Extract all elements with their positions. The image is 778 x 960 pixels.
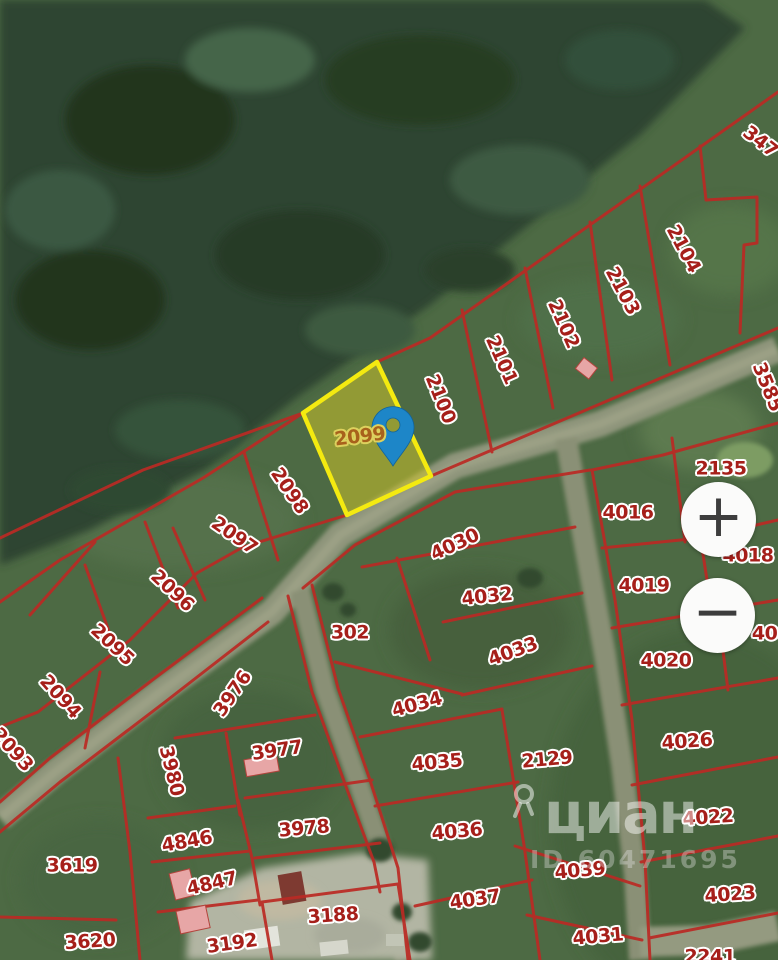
plus-icon: +: [693, 486, 743, 546]
parcel-label: 4035: [411, 751, 463, 774]
parcel-label: 4026: [661, 731, 713, 754]
parcel-label: 4031: [572, 925, 624, 948]
parcel-label: 4019: [619, 577, 670, 596]
zoom-in-button[interactable]: +: [681, 482, 756, 557]
satellite-map[interactable]: 3472104210321022101210020992098209720962…: [0, 0, 778, 960]
parcel-label: 3978: [278, 817, 330, 840]
parcel-label: 4036: [431, 820, 483, 843]
parcel-label: 4039: [554, 859, 606, 882]
parcel-label: 302: [331, 624, 369, 643]
parcel-label: 3188: [307, 905, 359, 928]
parcel-label: 4022: [682, 807, 734, 830]
parcel-label: 4020: [641, 652, 692, 671]
parcel-label: 3620: [64, 931, 116, 954]
parcel-label: 2241: [685, 948, 736, 960]
parcel-label: 2129: [521, 748, 573, 771]
parcel-label: 2135: [696, 460, 747, 479]
parcel-label: 4032: [461, 585, 514, 609]
building: [319, 940, 348, 957]
zoom-out-button[interactable]: −: [680, 578, 755, 653]
building: [386, 934, 404, 946]
parcel-label: 3619: [47, 857, 98, 876]
parcel-label: 401: [752, 625, 778, 644]
parcel-label: 4016: [603, 504, 654, 523]
map-terrain-layer: [0, 0, 778, 960]
minus-icon: −: [692, 582, 742, 642]
parcel-label: 4023: [704, 884, 756, 907]
